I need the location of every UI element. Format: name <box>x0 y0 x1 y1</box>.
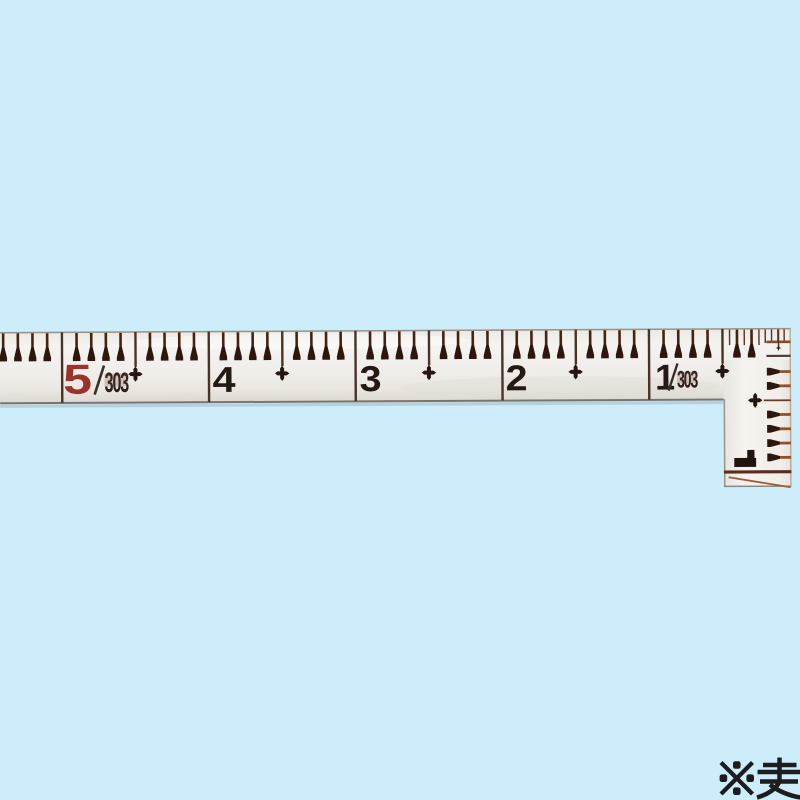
svg-text:3: 3 <box>359 358 381 399</box>
svg-text:5: 5 <box>63 356 92 403</box>
svg-text:2: 2 <box>505 357 527 398</box>
svg-text:4: 4 <box>212 359 235 400</box>
